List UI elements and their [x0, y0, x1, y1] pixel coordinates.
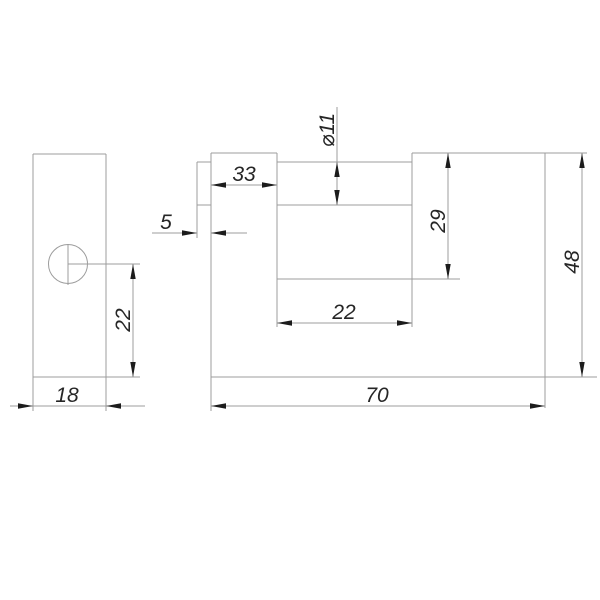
dim-d11-arrow-top-icon	[334, 162, 339, 177]
dimension-22-front: 22	[277, 301, 412, 326]
dim-22-front-arrow-left-icon	[277, 320, 292, 325]
dim-48-arrow-top-icon	[579, 153, 584, 168]
dim-5-label: 5	[160, 211, 172, 234]
dim-18-arrow-left-icon	[18, 403, 33, 408]
dim-48-arrow-bottom-icon	[579, 362, 584, 377]
dim-33-arrow-right-icon	[262, 182, 277, 187]
dim-29-arrow-top-icon	[445, 153, 450, 168]
dimension-70: 70	[211, 384, 545, 409]
dim-18-arrow-right-icon	[106, 403, 121, 408]
dim-33-arrow-left-icon	[211, 182, 226, 187]
front-view	[197, 153, 597, 411]
dim-d11-label: ⌀11	[316, 113, 339, 147]
dim-22-side-label: 22	[112, 308, 135, 333]
dim-33-label: 33	[232, 163, 256, 186]
dim-22-front-arrow-right-icon	[397, 320, 412, 325]
dim-22-side-arrow-top-icon	[130, 264, 135, 279]
dim-5-arrow-left-icon	[182, 230, 197, 235]
dimension-5: 5	[152, 211, 247, 236]
dimension-22-side: 22	[112, 264, 136, 377]
dim-22-side-arrow-bottom-icon	[130, 362, 135, 377]
dim-70-arrow-right-icon	[530, 403, 545, 408]
dimension-48: 48	[561, 153, 585, 377]
dim-29-arrow-bottom-icon	[445, 264, 450, 279]
dimension-33: 33	[211, 163, 277, 188]
dim-18-label: 18	[55, 384, 79, 407]
dim-29-label: 29	[427, 209, 450, 234]
dimension-diameter-11: ⌀11	[316, 107, 340, 205]
dim-48-label: 48	[561, 250, 584, 274]
dimension-18: 18	[10, 384, 145, 409]
dim-22-front-label: 22	[331, 301, 356, 324]
padlock-drawing: 18 22 33 5	[0, 0, 600, 600]
drawing-canvas: 18 22 33 5	[0, 0, 600, 600]
dim-5-arrow-right-icon	[211, 230, 226, 235]
side-view	[33, 154, 140, 411]
dim-70-arrow-left-icon	[211, 403, 226, 408]
dimension-29: 29	[427, 153, 451, 279]
dim-70-label: 70	[365, 384, 389, 407]
dim-d11-arrow-bottom-icon	[334, 190, 339, 205]
